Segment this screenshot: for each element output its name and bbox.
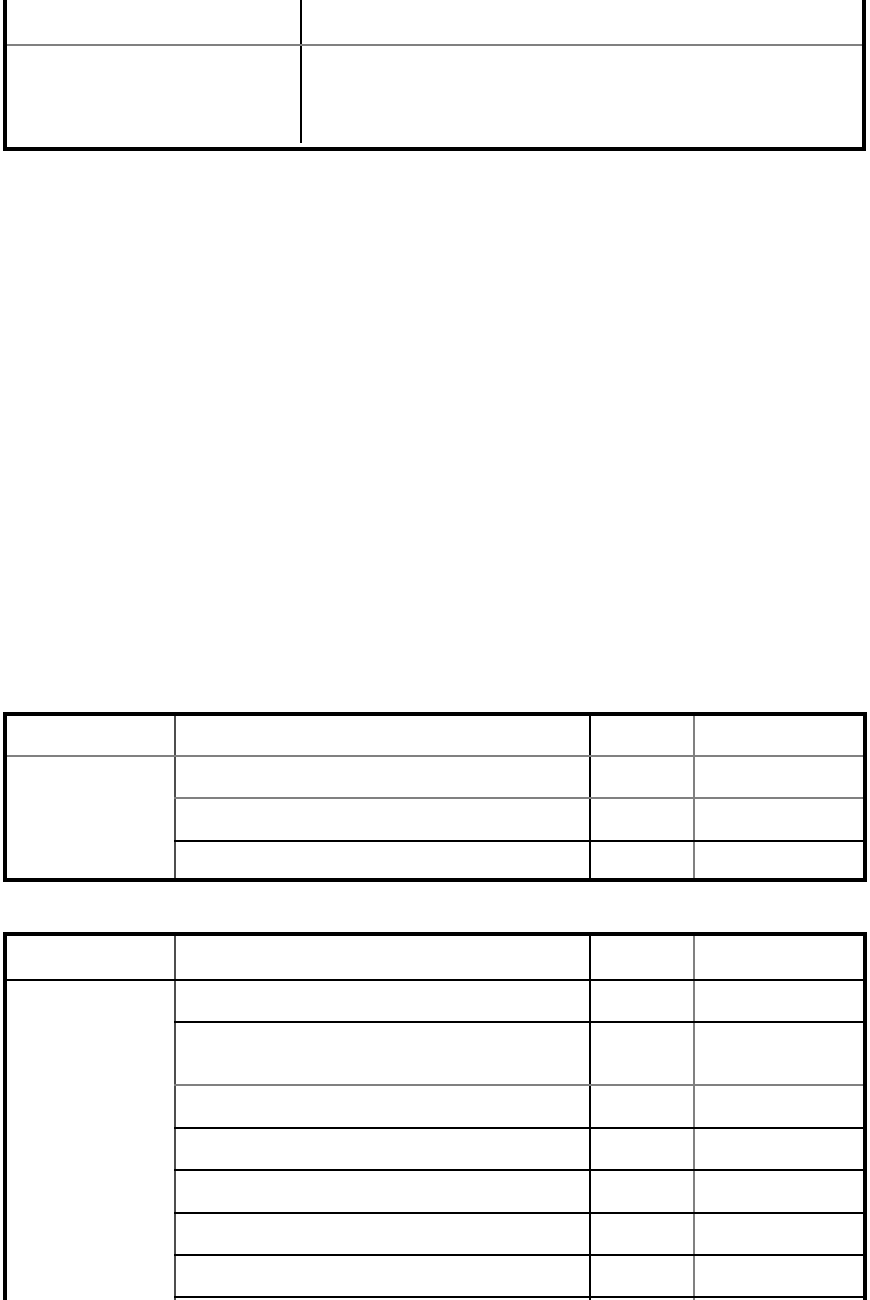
table-cell <box>176 1023 589 1084</box>
table-cell <box>7 46 300 143</box>
table-cell <box>591 1086 693 1127</box>
table-cell <box>695 1171 863 1212</box>
table-cell <box>591 1171 693 1212</box>
table-cell <box>591 799 693 840</box>
table-cell <box>695 1214 863 1254</box>
header-cell <box>7 716 174 755</box>
table-cell <box>176 757 589 797</box>
table-cell <box>591 1129 693 1169</box>
merged-left-cell <box>7 981 174 1300</box>
header-cell <box>695 936 863 979</box>
table-bottom <box>3 932 867 1300</box>
table-cell <box>591 1023 693 1084</box>
table-cell <box>176 842 589 878</box>
table-cell <box>176 981 589 1021</box>
header-cell <box>591 936 693 979</box>
header-cell <box>695 716 863 755</box>
table-cell <box>695 842 863 878</box>
table-cell <box>176 1171 589 1212</box>
header-cell <box>7 936 174 979</box>
table-cell <box>176 1256 589 1296</box>
header-cell <box>591 716 693 755</box>
table-cell <box>7 0 300 44</box>
table-cell <box>176 1214 589 1254</box>
table-cell <box>695 1023 863 1084</box>
table-cell <box>176 799 589 840</box>
table-cell <box>591 1256 693 1296</box>
table-cell <box>695 1086 863 1127</box>
table-cell <box>176 1086 589 1127</box>
header-cell <box>176 716 589 755</box>
table-middle <box>3 712 867 882</box>
table-cell <box>302 0 862 44</box>
table-cell <box>695 799 863 840</box>
table-cell <box>695 1256 863 1296</box>
table-cell <box>591 842 693 878</box>
table-cell <box>591 757 693 797</box>
table-cell <box>302 46 862 143</box>
table-cell <box>695 757 863 797</box>
table-cell <box>176 1129 589 1169</box>
table-cell <box>695 981 863 1021</box>
table-cell <box>591 1214 693 1254</box>
table-top <box>3 0 866 151</box>
merged-left-cell <box>7 757 174 878</box>
header-cell <box>176 936 589 979</box>
table-cell <box>695 1129 863 1169</box>
document-page <box>0 0 870 1300</box>
table-cell <box>591 981 693 1021</box>
